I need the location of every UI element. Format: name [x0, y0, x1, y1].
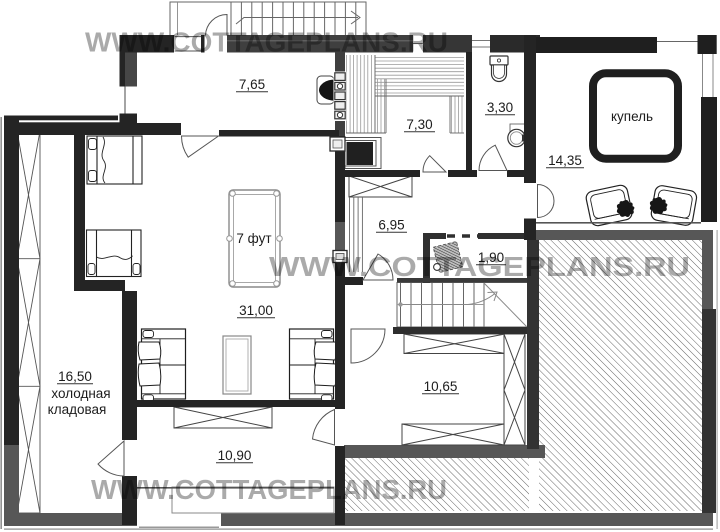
svg-text:7,65: 7,65 — [239, 77, 265, 92]
svg-text:16,50: 16,50 — [58, 369, 92, 384]
svg-text:3,30: 3,30 — [487, 100, 513, 115]
svg-text:7,30: 7,30 — [406, 117, 432, 132]
svg-text:10,90: 10,90 — [218, 448, 252, 463]
svg-text:31,00: 31,00 — [239, 303, 273, 318]
svg-text:кладовая: кладовая — [48, 402, 107, 417]
svg-text:WWW.COTTAGEPLANS.RU: WWW.COTTAGEPLANS.RU — [85, 27, 448, 58]
svg-text:купель: купель — [611, 109, 653, 124]
svg-text:10,65: 10,65 — [424, 379, 458, 394]
svg-text:14,35: 14,35 — [548, 153, 582, 168]
svg-text:6,95: 6,95 — [378, 218, 404, 233]
svg-text:холодная: холодная — [51, 386, 110, 401]
svg-text:WWW.COTTAGEPLANS.RU: WWW.COTTAGEPLANS.RU — [269, 251, 690, 282]
svg-text:7 фут: 7 фут — [236, 231, 271, 246]
svg-text:WWW.COTTAGEPLANS.RU: WWW.COTTAGEPLANS.RU — [91, 474, 447, 505]
